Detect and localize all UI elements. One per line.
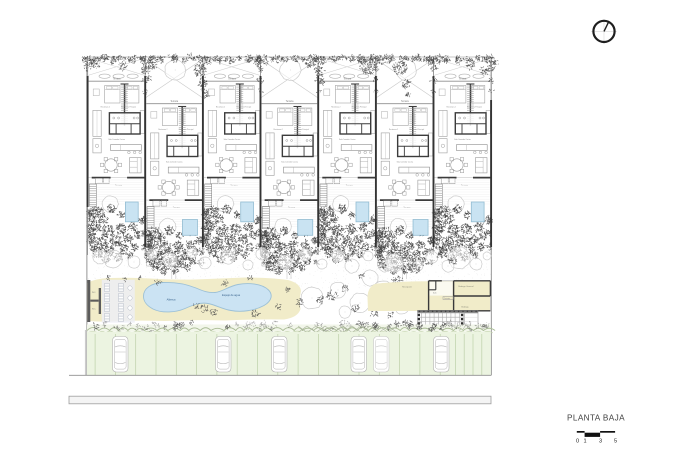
- svg-text:Sala Comedor Cocina: Sala Comedor Cocina: [166, 161, 183, 164]
- svg-text:Terraza: Terraza: [459, 78, 467, 81]
- svg-text:Sala Comedor Cocina: Sala Comedor Cocina: [454, 138, 471, 141]
- svg-text:Bodega: Bodega: [461, 306, 469, 308]
- svg-text:5: 5: [614, 439, 617, 445]
- svg-text:W.C.: W.C.: [92, 309, 96, 311]
- svg-text:0: 0: [576, 439, 579, 445]
- svg-text:Espejo de agua: Espejo de agua: [222, 293, 241, 297]
- svg-text:Recámara 2: Recámara 2: [158, 128, 167, 131]
- svg-text:Sala Comedor Cocina: Sala Comedor Cocina: [339, 138, 356, 141]
- svg-text:Sala Comedor Cocina: Sala Comedor Cocina: [224, 138, 241, 141]
- svg-text:Terraza: Terraza: [170, 100, 178, 103]
- svg-text:Terraza: Terraza: [228, 78, 236, 81]
- svg-text:Recámara 2: Recámara 2: [389, 128, 398, 131]
- svg-text:Recámara 2: Recámara 2: [101, 105, 110, 108]
- svg-text:Sala Comedor Cocina: Sala Comedor Cocina: [108, 138, 125, 141]
- svg-text:PLANTA BAJA: PLANTA BAJA: [567, 414, 625, 423]
- svg-text:W.C.: W.C.: [92, 292, 96, 294]
- svg-text:Terraza: Terraza: [343, 78, 351, 81]
- svg-text:Alberca: Alberca: [167, 298, 176, 302]
- svg-text:Recepción: Recepción: [402, 287, 413, 289]
- svg-text:Recámara 2: Recámara 2: [274, 128, 283, 131]
- svg-text:Recámara 2: Recámara 2: [216, 105, 225, 108]
- svg-text:Terraza: Terraza: [113, 78, 121, 81]
- svg-text:Bodega General: Bodega General: [458, 285, 474, 288]
- svg-text:3: 3: [599, 439, 602, 445]
- svg-text:Terraza: Terraza: [286, 100, 294, 103]
- svg-text:Recámara 2: Recámara 2: [447, 105, 456, 108]
- svg-text:1: 1: [583, 439, 586, 445]
- svg-text:Sala Comedor Cocina: Sala Comedor Cocina: [397, 161, 414, 164]
- svg-text:Terraza: Terraza: [401, 100, 409, 103]
- svg-text:Sala Comedor Cocina: Sala Comedor Cocina: [281, 161, 298, 164]
- svg-text:Recámara 2: Recámara 2: [331, 105, 340, 108]
